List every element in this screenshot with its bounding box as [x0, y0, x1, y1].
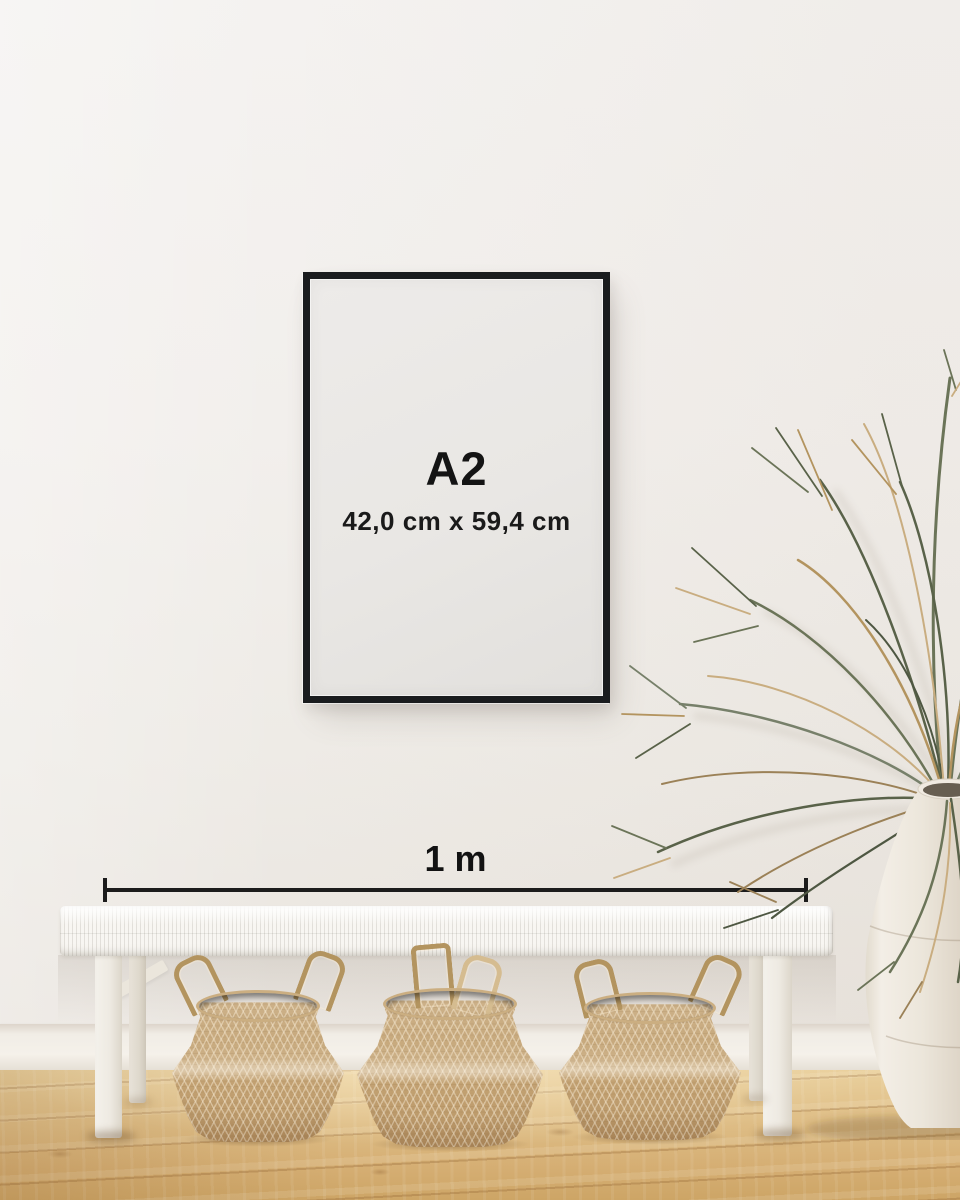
leg-shadow [86, 1131, 136, 1142]
vase-body [865, 788, 960, 1128]
palm-plant-and-vase [600, 330, 960, 1140]
frame-paper: A2 42,0 cm x 59,4 cm [310, 279, 603, 696]
seagrass-basket-middle [357, 996, 543, 1147]
basket-opening [199, 993, 318, 1019]
basket-body [172, 998, 344, 1142]
bench-leg-left-front [95, 952, 122, 1138]
leg-shadow [124, 1098, 152, 1106]
picture-frame: A2 42,0 cm x 59,4 cm [303, 272, 610, 703]
frame-size-label: A2 [425, 445, 487, 492]
seagrass-basket-left [172, 998, 344, 1142]
frame-dimensions-label: 42,0 cm x 59,4 cm [342, 506, 570, 537]
bench-leg-left-back [129, 952, 146, 1103]
basket-body [357, 996, 543, 1147]
basket-opening [386, 991, 514, 1017]
